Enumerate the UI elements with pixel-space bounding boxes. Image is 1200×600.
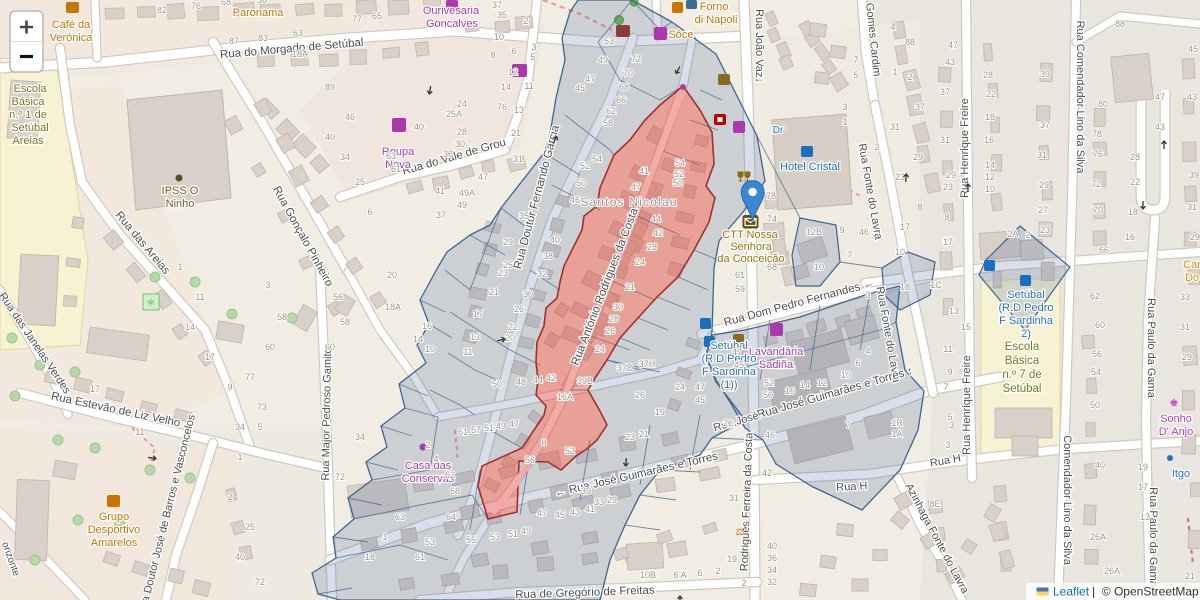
svg-text:39: 39 xyxy=(581,486,591,496)
svg-text:72: 72 xyxy=(631,54,641,64)
svg-text:Sonho: Sonho xyxy=(1160,413,1192,425)
svg-text:46: 46 xyxy=(765,430,775,440)
svg-text:6: 6 xyxy=(511,46,516,56)
svg-text:Paronama: Paronama xyxy=(233,7,285,19)
svg-text:21: 21 xyxy=(511,128,521,138)
svg-text:Leaflet: Leaflet xyxy=(1053,585,1090,599)
svg-text:50: 50 xyxy=(576,178,586,188)
svg-text:78: 78 xyxy=(1092,129,1102,139)
svg-text:34: 34 xyxy=(340,152,350,162)
svg-text:28: 28 xyxy=(647,242,657,252)
svg-text:3: 3 xyxy=(865,290,870,300)
svg-text:3: 3 xyxy=(945,440,950,450)
svg-text:46: 46 xyxy=(345,112,355,122)
svg-text:3: 3 xyxy=(265,280,270,290)
svg-text:29: 29 xyxy=(946,170,956,180)
svg-text:34: 34 xyxy=(767,565,777,575)
svg-text:Rua Major Pedroso Gamito: Rua Major Pedroso Gamito xyxy=(320,347,334,480)
svg-text:76: 76 xyxy=(497,102,507,112)
svg-text:60: 60 xyxy=(1095,320,1105,330)
svg-text:12: 12 xyxy=(817,378,827,388)
svg-text:3: 3 xyxy=(842,102,847,112)
svg-text:30: 30 xyxy=(523,289,533,299)
svg-text:40: 40 xyxy=(550,235,560,245)
svg-text:47: 47 xyxy=(509,419,519,429)
svg-text:Senhora: Senhora xyxy=(730,241,772,253)
svg-text:Setúbal: Setúbal xyxy=(1002,383,1041,395)
svg-text:Básica: Básica xyxy=(1005,355,1040,367)
svg-text:63: 63 xyxy=(293,28,303,38)
svg-text:11: 11 xyxy=(943,344,952,354)
svg-text:29: 29 xyxy=(1182,352,1192,362)
svg-text:Grupo: Grupo xyxy=(99,511,130,523)
svg-text:40: 40 xyxy=(325,132,335,142)
svg-text:14: 14 xyxy=(185,322,195,332)
svg-text:42: 42 xyxy=(762,468,772,478)
svg-text:77: 77 xyxy=(352,14,362,24)
svg-text:47: 47 xyxy=(695,382,705,392)
svg-text:54: 54 xyxy=(1091,367,1101,377)
svg-text:54: 54 xyxy=(592,154,602,164)
svg-text:29: 29 xyxy=(913,152,923,162)
svg-text:36: 36 xyxy=(767,553,777,563)
svg-text:11: 11 xyxy=(524,81,533,91)
svg-text:57: 57 xyxy=(471,425,481,435)
svg-text:8E: 8E xyxy=(929,499,940,509)
svg-text:31: 31 xyxy=(940,135,950,145)
svg-text:26: 26 xyxy=(514,304,524,314)
svg-text:2): 2) xyxy=(1021,328,1031,340)
svg-text:50: 50 xyxy=(673,178,683,188)
svg-text:1A: 1A xyxy=(891,429,902,439)
svg-text:53: 53 xyxy=(425,537,435,547)
svg-text:6: 6 xyxy=(367,207,372,217)
svg-text:50: 50 xyxy=(492,379,502,389)
svg-text:34: 34 xyxy=(355,432,365,442)
svg-text:Rua Henrique Freire: Rua Henrique Freire xyxy=(961,355,973,455)
svg-text:11: 11 xyxy=(463,347,472,357)
svg-text:8: 8 xyxy=(917,202,922,212)
svg-text:2: 2 xyxy=(227,492,232,502)
svg-text:59: 59 xyxy=(735,284,745,294)
svg-text:22: 22 xyxy=(986,89,996,99)
svg-text:9: 9 xyxy=(227,382,232,392)
svg-text:18A: 18A xyxy=(385,302,401,312)
svg-text:70: 70 xyxy=(1093,205,1103,215)
svg-text:62: 62 xyxy=(445,470,455,480)
svg-text:24: 24 xyxy=(635,257,645,267)
svg-text:45: 45 xyxy=(695,395,705,405)
svg-text:25A: 25A xyxy=(446,109,462,119)
svg-text:Sôce: Sôce xyxy=(668,29,693,41)
svg-text:37: 37 xyxy=(492,0,502,10)
svg-text:15: 15 xyxy=(961,322,971,332)
svg-text:14: 14 xyxy=(413,334,423,344)
svg-text:61: 61 xyxy=(391,164,401,174)
svg-text:25: 25 xyxy=(245,522,255,532)
svg-text:Rua Paulo da Gama: Rua Paulo da Gama xyxy=(1145,298,1157,399)
svg-text:2: 2 xyxy=(874,142,879,152)
svg-text:17: 17 xyxy=(943,237,953,247)
svg-text:23: 23 xyxy=(895,172,905,182)
svg-text:40: 40 xyxy=(414,122,424,132)
svg-text:72: 72 xyxy=(255,577,265,587)
svg-text:2: 2 xyxy=(741,578,746,588)
svg-text:Setúbal: Setúbal xyxy=(710,340,747,352)
svg-text:37: 37 xyxy=(436,210,446,220)
svg-text:41: 41 xyxy=(435,186,445,196)
svg-text:48: 48 xyxy=(516,377,526,387)
svg-text:35: 35 xyxy=(519,211,529,221)
svg-text:16: 16 xyxy=(1125,232,1135,242)
svg-text:47: 47 xyxy=(537,508,547,518)
svg-text:⚛: ⚛ xyxy=(147,298,156,309)
svg-text:52: 52 xyxy=(565,446,575,456)
svg-text:47: 47 xyxy=(585,74,595,84)
svg-text:40: 40 xyxy=(235,552,245,562)
svg-text:Rua João Vaz↓: Rua João Vaz↓ xyxy=(753,9,765,83)
svg-text:49: 49 xyxy=(457,200,467,210)
svg-text:Comendador Lino da Silva: Comendador Lino da Silva xyxy=(1061,435,1073,566)
svg-text:10: 10 xyxy=(425,344,435,354)
svg-text:(R D Pedro: (R D Pedro xyxy=(701,353,756,365)
svg-text:77: 77 xyxy=(245,372,255,382)
svg-text:76: 76 xyxy=(191,1,201,11)
svg-text:39: 39 xyxy=(1189,170,1199,180)
svg-text:44: 44 xyxy=(533,375,543,385)
svg-text:55: 55 xyxy=(466,535,476,545)
svg-text:IPSS O: IPSS O xyxy=(162,185,199,197)
svg-text:41: 41 xyxy=(639,166,649,176)
svg-text:9: 9 xyxy=(947,367,952,377)
svg-text:18: 18 xyxy=(365,552,375,562)
svg-text:CTT Nossa: CTT Nossa xyxy=(722,229,778,241)
svg-text:39: 39 xyxy=(1040,69,1050,79)
svg-text:60: 60 xyxy=(325,342,335,352)
svg-text:78: 78 xyxy=(766,191,776,201)
svg-text:19: 19 xyxy=(1138,462,1148,472)
svg-text:74: 74 xyxy=(767,214,777,224)
svg-text:Dr: Dr xyxy=(773,125,784,136)
svg-text:22: 22 xyxy=(508,322,518,332)
svg-text:22: 22 xyxy=(1130,177,1140,187)
svg-text:88: 88 xyxy=(905,37,915,47)
svg-text:68: 68 xyxy=(450,486,460,496)
svg-text:24: 24 xyxy=(457,99,467,109)
svg-text:47: 47 xyxy=(948,40,958,50)
svg-text:6: 6 xyxy=(697,568,702,578)
svg-text:49: 49 xyxy=(496,421,506,431)
svg-text:32: 32 xyxy=(767,577,777,587)
svg-text:36: 36 xyxy=(443,149,453,159)
svg-text:Amarelos: Amarelos xyxy=(91,537,138,549)
svg-text:Ninho: Ninho xyxy=(166,198,195,210)
svg-text:37: 37 xyxy=(915,102,925,112)
svg-text:9: 9 xyxy=(839,225,844,235)
svg-text:68: 68 xyxy=(619,82,629,92)
svg-text:49: 49 xyxy=(521,526,531,536)
svg-text:70: 70 xyxy=(623,68,633,78)
svg-text:56: 56 xyxy=(1092,349,1102,359)
svg-text:18A: 18A xyxy=(292,49,308,59)
svg-text:28: 28 xyxy=(1130,152,1140,162)
svg-text:47: 47 xyxy=(631,182,641,192)
svg-text:29: 29 xyxy=(503,237,513,247)
svg-text:20: 20 xyxy=(505,333,515,343)
svg-text:Rua Paulo da Gama: Rua Paulo da Gama xyxy=(1147,487,1159,588)
svg-text:39B: 39B xyxy=(577,376,593,386)
svg-text:14: 14 xyxy=(800,380,810,390)
svg-text:(1)): (1)) xyxy=(720,379,737,391)
svg-text:87: 87 xyxy=(229,36,239,46)
svg-text:88: 88 xyxy=(1115,19,1125,29)
svg-text:61: 61 xyxy=(458,427,468,437)
svg-text:50: 50 xyxy=(763,390,773,400)
svg-text:10: 10 xyxy=(985,184,995,194)
svg-text:1: 1 xyxy=(237,452,242,462)
svg-text:2: 2 xyxy=(907,72,912,82)
svg-text:58: 58 xyxy=(603,118,613,128)
svg-text:26: 26 xyxy=(605,326,615,336)
svg-text:12B: 12B xyxy=(806,227,822,237)
svg-text:25: 25 xyxy=(355,177,365,187)
svg-text:17: 17 xyxy=(473,309,483,319)
svg-text:3: 3 xyxy=(949,420,954,430)
svg-text:F Sardinha: F Sardinha xyxy=(999,315,1054,327)
svg-text:23: 23 xyxy=(498,268,508,278)
svg-text:62: 62 xyxy=(606,106,616,116)
svg-text:Santos Nicolau: Santos Nicolau xyxy=(580,195,678,209)
svg-text:Ourivesaria: Ourivesaria xyxy=(423,5,480,17)
svg-text:16: 16 xyxy=(785,386,795,396)
svg-text:65: 65 xyxy=(372,11,382,21)
svg-text:37D: 37D xyxy=(617,363,634,373)
svg-text:43: 43 xyxy=(1155,122,1165,132)
svg-text:43: 43 xyxy=(945,57,955,67)
svg-text:24: 24 xyxy=(595,344,605,354)
svg-text:34: 34 xyxy=(235,422,245,432)
svg-text:52: 52 xyxy=(580,161,590,171)
svg-text:7: 7 xyxy=(845,420,850,430)
svg-text:58: 58 xyxy=(340,317,350,327)
svg-text:19: 19 xyxy=(727,554,737,564)
svg-text:31: 31 xyxy=(1037,150,1047,160)
svg-text:33: 33 xyxy=(594,497,604,507)
svg-text:31: 31 xyxy=(729,493,739,503)
svg-text:31: 31 xyxy=(513,154,523,164)
svg-text:21: 21 xyxy=(489,287,499,297)
svg-text:1R: 1R xyxy=(891,418,903,428)
svg-text:18: 18 xyxy=(985,112,995,122)
svg-text:46: 46 xyxy=(570,195,580,205)
svg-text:Areias: Areias xyxy=(12,135,44,147)
svg-text:60: 60 xyxy=(265,342,275,352)
svg-text:26A: 26A xyxy=(1090,532,1106,542)
svg-text:Lavandária: Lavandária xyxy=(749,346,804,358)
svg-text:26A: 26A xyxy=(1104,566,1120,576)
svg-text:D' Anjo: D' Anjo xyxy=(1159,426,1194,438)
svg-text:10B: 10B xyxy=(640,570,656,580)
svg-text:2A: 2A xyxy=(1007,229,1018,239)
svg-text:64: 64 xyxy=(446,512,456,522)
svg-text:32: 32 xyxy=(537,269,547,279)
svg-text:68: 68 xyxy=(221,0,231,7)
svg-text:n.º 1 de: n.º 1 de xyxy=(9,109,47,121)
svg-text:F Sardinha: F Sardinha xyxy=(702,366,757,378)
svg-text:46: 46 xyxy=(859,227,869,237)
svg-text:13: 13 xyxy=(1140,512,1150,522)
svg-text:27: 27 xyxy=(1038,205,1048,215)
svg-text:24: 24 xyxy=(675,382,685,392)
svg-text:89: 89 xyxy=(325,82,335,92)
svg-text:54: 54 xyxy=(675,158,685,168)
svg-text:4: 4 xyxy=(433,454,438,464)
svg-text:45: 45 xyxy=(734,360,744,370)
svg-text:72: 72 xyxy=(335,472,345,482)
svg-text:16: 16 xyxy=(422,321,432,331)
svg-text:21: 21 xyxy=(1185,571,1195,581)
svg-text:21: 21 xyxy=(625,282,635,292)
svg-text:7: 7 xyxy=(853,55,858,65)
svg-text:Rua H: Rua H xyxy=(836,480,868,494)
svg-text:8: 8 xyxy=(944,212,949,222)
svg-text:63: 63 xyxy=(386,151,396,161)
svg-text:10: 10 xyxy=(814,262,824,272)
svg-text:Setúbal: Setúbal xyxy=(1007,289,1044,301)
svg-text:19: 19 xyxy=(655,407,665,417)
svg-text:31: 31 xyxy=(1180,322,1190,332)
svg-text:52: 52 xyxy=(764,378,774,388)
svg-text:17: 17 xyxy=(1138,482,1148,492)
svg-text:43: 43 xyxy=(1187,92,1197,102)
svg-text:14: 14 xyxy=(985,160,995,170)
svg-text:1: 1 xyxy=(842,117,847,127)
svg-text:26: 26 xyxy=(635,390,645,400)
svg-text:23: 23 xyxy=(943,182,953,192)
svg-text:29: 29 xyxy=(1190,232,1200,242)
svg-text:♚: ♚ xyxy=(1170,398,1179,409)
svg-text:73: 73 xyxy=(257,402,267,412)
svg-text:5: 5 xyxy=(530,52,535,62)
svg-text:Escola: Escola xyxy=(1005,341,1040,353)
svg-text:35: 35 xyxy=(497,10,507,20)
svg-text:45: 45 xyxy=(575,83,585,93)
svg-text:31: 31 xyxy=(890,122,900,132)
svg-text:16A: 16A xyxy=(557,392,573,402)
svg-text:13: 13 xyxy=(514,105,524,115)
svg-text:47: 47 xyxy=(732,347,742,357)
svg-text:42: 42 xyxy=(546,373,556,383)
svg-text:56: 56 xyxy=(525,455,535,465)
svg-text:28: 28 xyxy=(983,70,993,80)
svg-text:Itgo: Itgo xyxy=(1172,468,1190,480)
svg-text:Forno: Forno xyxy=(700,1,729,13)
svg-text:49A: 49A xyxy=(459,188,475,198)
svg-text:42: 42 xyxy=(653,228,663,238)
svg-text:7: 7 xyxy=(847,250,852,260)
svg-text:30: 30 xyxy=(455,139,465,149)
svg-text:5: 5 xyxy=(257,422,262,432)
svg-text:61: 61 xyxy=(415,552,425,562)
svg-text:Rua Henrique Freire: Rua Henrique Freire xyxy=(959,98,971,198)
svg-text:51: 51 xyxy=(484,423,494,433)
svg-text:68: 68 xyxy=(767,262,777,272)
svg-text:44: 44 xyxy=(651,214,661,224)
svg-text:56: 56 xyxy=(333,292,343,302)
svg-text:28: 28 xyxy=(609,314,619,324)
svg-text:Car: Car xyxy=(1183,259,1200,271)
svg-text:83: 83 xyxy=(258,33,268,43)
svg-text:66: 66 xyxy=(616,95,626,105)
svg-text:41: 41 xyxy=(585,504,595,514)
svg-text:80: 80 xyxy=(1098,99,1108,109)
svg-text:⚖: ⚖ xyxy=(736,527,745,538)
svg-text:Verónica: Verónica xyxy=(50,32,94,44)
svg-text:21: 21 xyxy=(639,429,649,439)
svg-text:11: 11 xyxy=(135,427,144,437)
svg-text:Café da: Café da xyxy=(52,19,91,31)
svg-text:33: 33 xyxy=(1180,292,1190,302)
svg-text:53: 53 xyxy=(490,532,500,542)
svg-text:56: 56 xyxy=(257,0,267,5)
svg-text:28: 28 xyxy=(457,127,467,137)
svg-text:Básica: Básica xyxy=(11,96,45,108)
svg-text:6: 6 xyxy=(855,358,860,368)
svg-text:Escola: Escola xyxy=(13,83,47,95)
svg-text:7: 7 xyxy=(943,382,948,392)
svg-text:3: 3 xyxy=(531,42,536,52)
svg-text:10: 10 xyxy=(895,247,905,257)
svg-text:61: 61 xyxy=(735,270,745,280)
svg-text:63: 63 xyxy=(395,512,405,522)
svg-text:47: 47 xyxy=(478,172,488,182)
svg-text:17: 17 xyxy=(900,222,910,232)
svg-text:50: 50 xyxy=(1090,400,1100,410)
svg-text:37: 37 xyxy=(940,87,950,97)
svg-text:51: 51 xyxy=(508,529,518,539)
svg-text:37H: 37H xyxy=(639,359,656,369)
svg-text:(R.D Pedro: (R.D Pedro xyxy=(998,302,1053,314)
svg-text:38: 38 xyxy=(543,251,553,261)
svg-text:58: 58 xyxy=(277,312,287,322)
svg-text:30: 30 xyxy=(613,302,623,312)
svg-text:40: 40 xyxy=(767,541,777,551)
svg-text:23: 23 xyxy=(1040,225,1050,235)
svg-text:Hotel Cristal: Hotel Cristal xyxy=(780,161,840,173)
svg-text:Sadiña: Sadiña xyxy=(759,359,794,371)
svg-text:1: 1 xyxy=(382,532,387,542)
svg-text:Goncalves: Goncalves xyxy=(426,18,478,30)
svg-text:1C: 1C xyxy=(930,280,942,290)
svg-text:31: 31 xyxy=(1187,202,1197,212)
svg-text:62: 62 xyxy=(1090,291,1100,301)
svg-text:2: 2 xyxy=(715,566,720,576)
svg-text:23: 23 xyxy=(625,432,635,442)
svg-text:6 A: 6 A xyxy=(673,570,686,580)
svg-text:53: 53 xyxy=(604,36,614,46)
svg-text:12: 12 xyxy=(508,67,518,77)
svg-text:49: 49 xyxy=(598,55,608,65)
svg-text:17: 17 xyxy=(90,384,100,394)
svg-text:29: 29 xyxy=(607,495,617,505)
svg-text:2: 2 xyxy=(523,16,528,26)
svg-text:45: 45 xyxy=(1188,44,1198,54)
svg-text:20: 20 xyxy=(387,270,397,280)
svg-text:1: 1 xyxy=(892,67,897,77)
svg-text:82: 82 xyxy=(157,5,167,15)
svg-text:Desportivo: Desportivo xyxy=(88,524,141,536)
svg-text:14: 14 xyxy=(501,82,511,92)
